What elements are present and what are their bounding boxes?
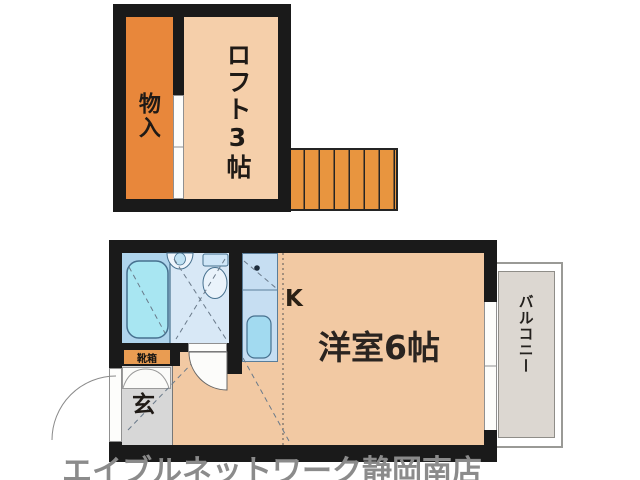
stairs bbox=[288, 148, 398, 211]
washroom-door bbox=[188, 343, 227, 352]
storage-door bbox=[173, 95, 184, 199]
floorplan-canvas: 物入 ロフト3帖 靴箱 bbox=[0, 0, 640, 480]
storage-label: 物入 bbox=[135, 92, 158, 140]
kitchen-wall bbox=[229, 253, 242, 352]
entrance-wall-stub bbox=[172, 343, 180, 366]
shoebox-label: 靴箱 bbox=[137, 350, 157, 365]
shoebox: 靴箱 bbox=[122, 348, 172, 366]
front-door-swing bbox=[52, 376, 116, 440]
bathroom-tub-area bbox=[122, 253, 170, 343]
balcony-label: バルコニー bbox=[517, 294, 533, 434]
western-room-label: 洋室6帖 bbox=[300, 331, 458, 365]
toilet-area bbox=[170, 253, 229, 343]
balcony-window bbox=[484, 302, 497, 430]
kitchen-counter bbox=[242, 253, 278, 362]
front-door bbox=[109, 368, 122, 442]
kitchen-label: K bbox=[285, 288, 303, 312]
watermark-store-name: エイブルネットワーク静岡南店 bbox=[62, 446, 482, 480]
corner-wall bbox=[227, 343, 242, 374]
entrance-step bbox=[122, 367, 171, 389]
entrance-label: 玄 bbox=[132, 394, 155, 418]
loft-label: ロフト3帖 bbox=[224, 42, 250, 181]
